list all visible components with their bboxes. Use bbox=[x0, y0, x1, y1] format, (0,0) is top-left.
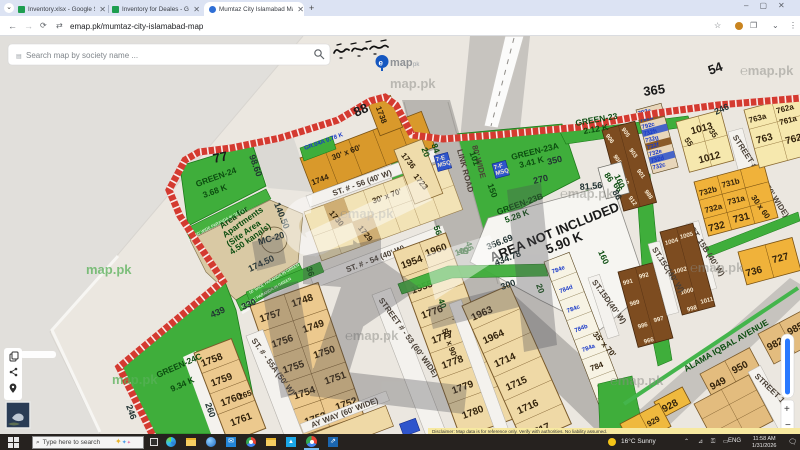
svg-text:℮map.pk: ℮map.pk bbox=[560, 186, 614, 201]
svg-text:pk: pk bbox=[413, 62, 420, 68]
svg-text:▤: ▤ bbox=[16, 54, 22, 60]
svg-text:map.pk: map.pk bbox=[390, 76, 436, 91]
svg-text:Search map by society name ...: Search map by society name ... bbox=[26, 51, 138, 60]
svg-text:map.pk: map.pk bbox=[112, 372, 158, 387]
svg-text:℮map.pk: ℮map.pk bbox=[610, 373, 664, 388]
svg-text:℮map.pk: ℮map.pk bbox=[690, 260, 744, 275]
svg-text:e: e bbox=[379, 59, 384, 68]
svg-text:map: map bbox=[390, 57, 413, 69]
svg-text:map.pk: map.pk bbox=[86, 262, 132, 277]
svg-text:77: 77 bbox=[212, 148, 229, 166]
svg-text:+: + bbox=[784, 404, 790, 415]
svg-text:365: 365 bbox=[642, 81, 666, 99]
svg-text:℮map.pk: ℮map.pk bbox=[740, 63, 794, 78]
